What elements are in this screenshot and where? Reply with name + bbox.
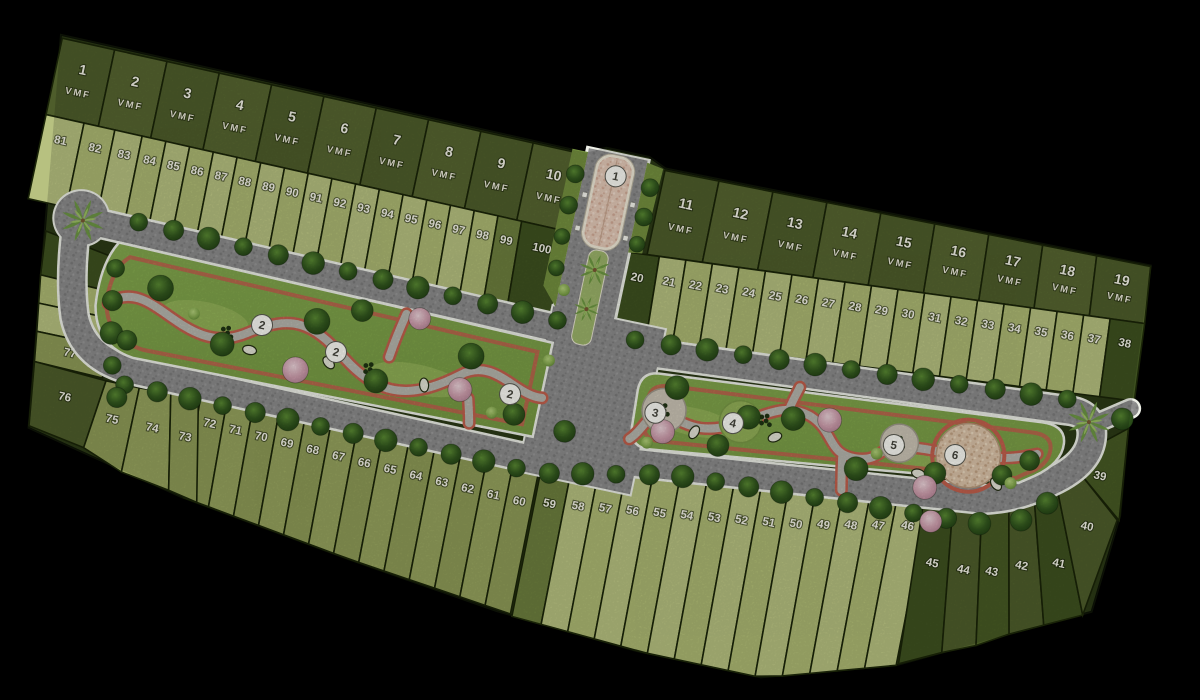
site-plan: 1VMF2VMF3VMF4VMF5VMF6VMF7VMF8VMF9VMF10VM… <box>0 0 1200 700</box>
plan-rotated-group: 1VMF2VMF3VMF4VMF5VMF6VMF7VMF8VMF9VMF10VM… <box>0 6 1200 700</box>
site-plan-svg: 1VMF2VMF3VMF4VMF5VMF6VMF7VMF8VMF9VMF10VM… <box>0 0 1200 700</box>
grain-overlay <box>0 6 1200 700</box>
